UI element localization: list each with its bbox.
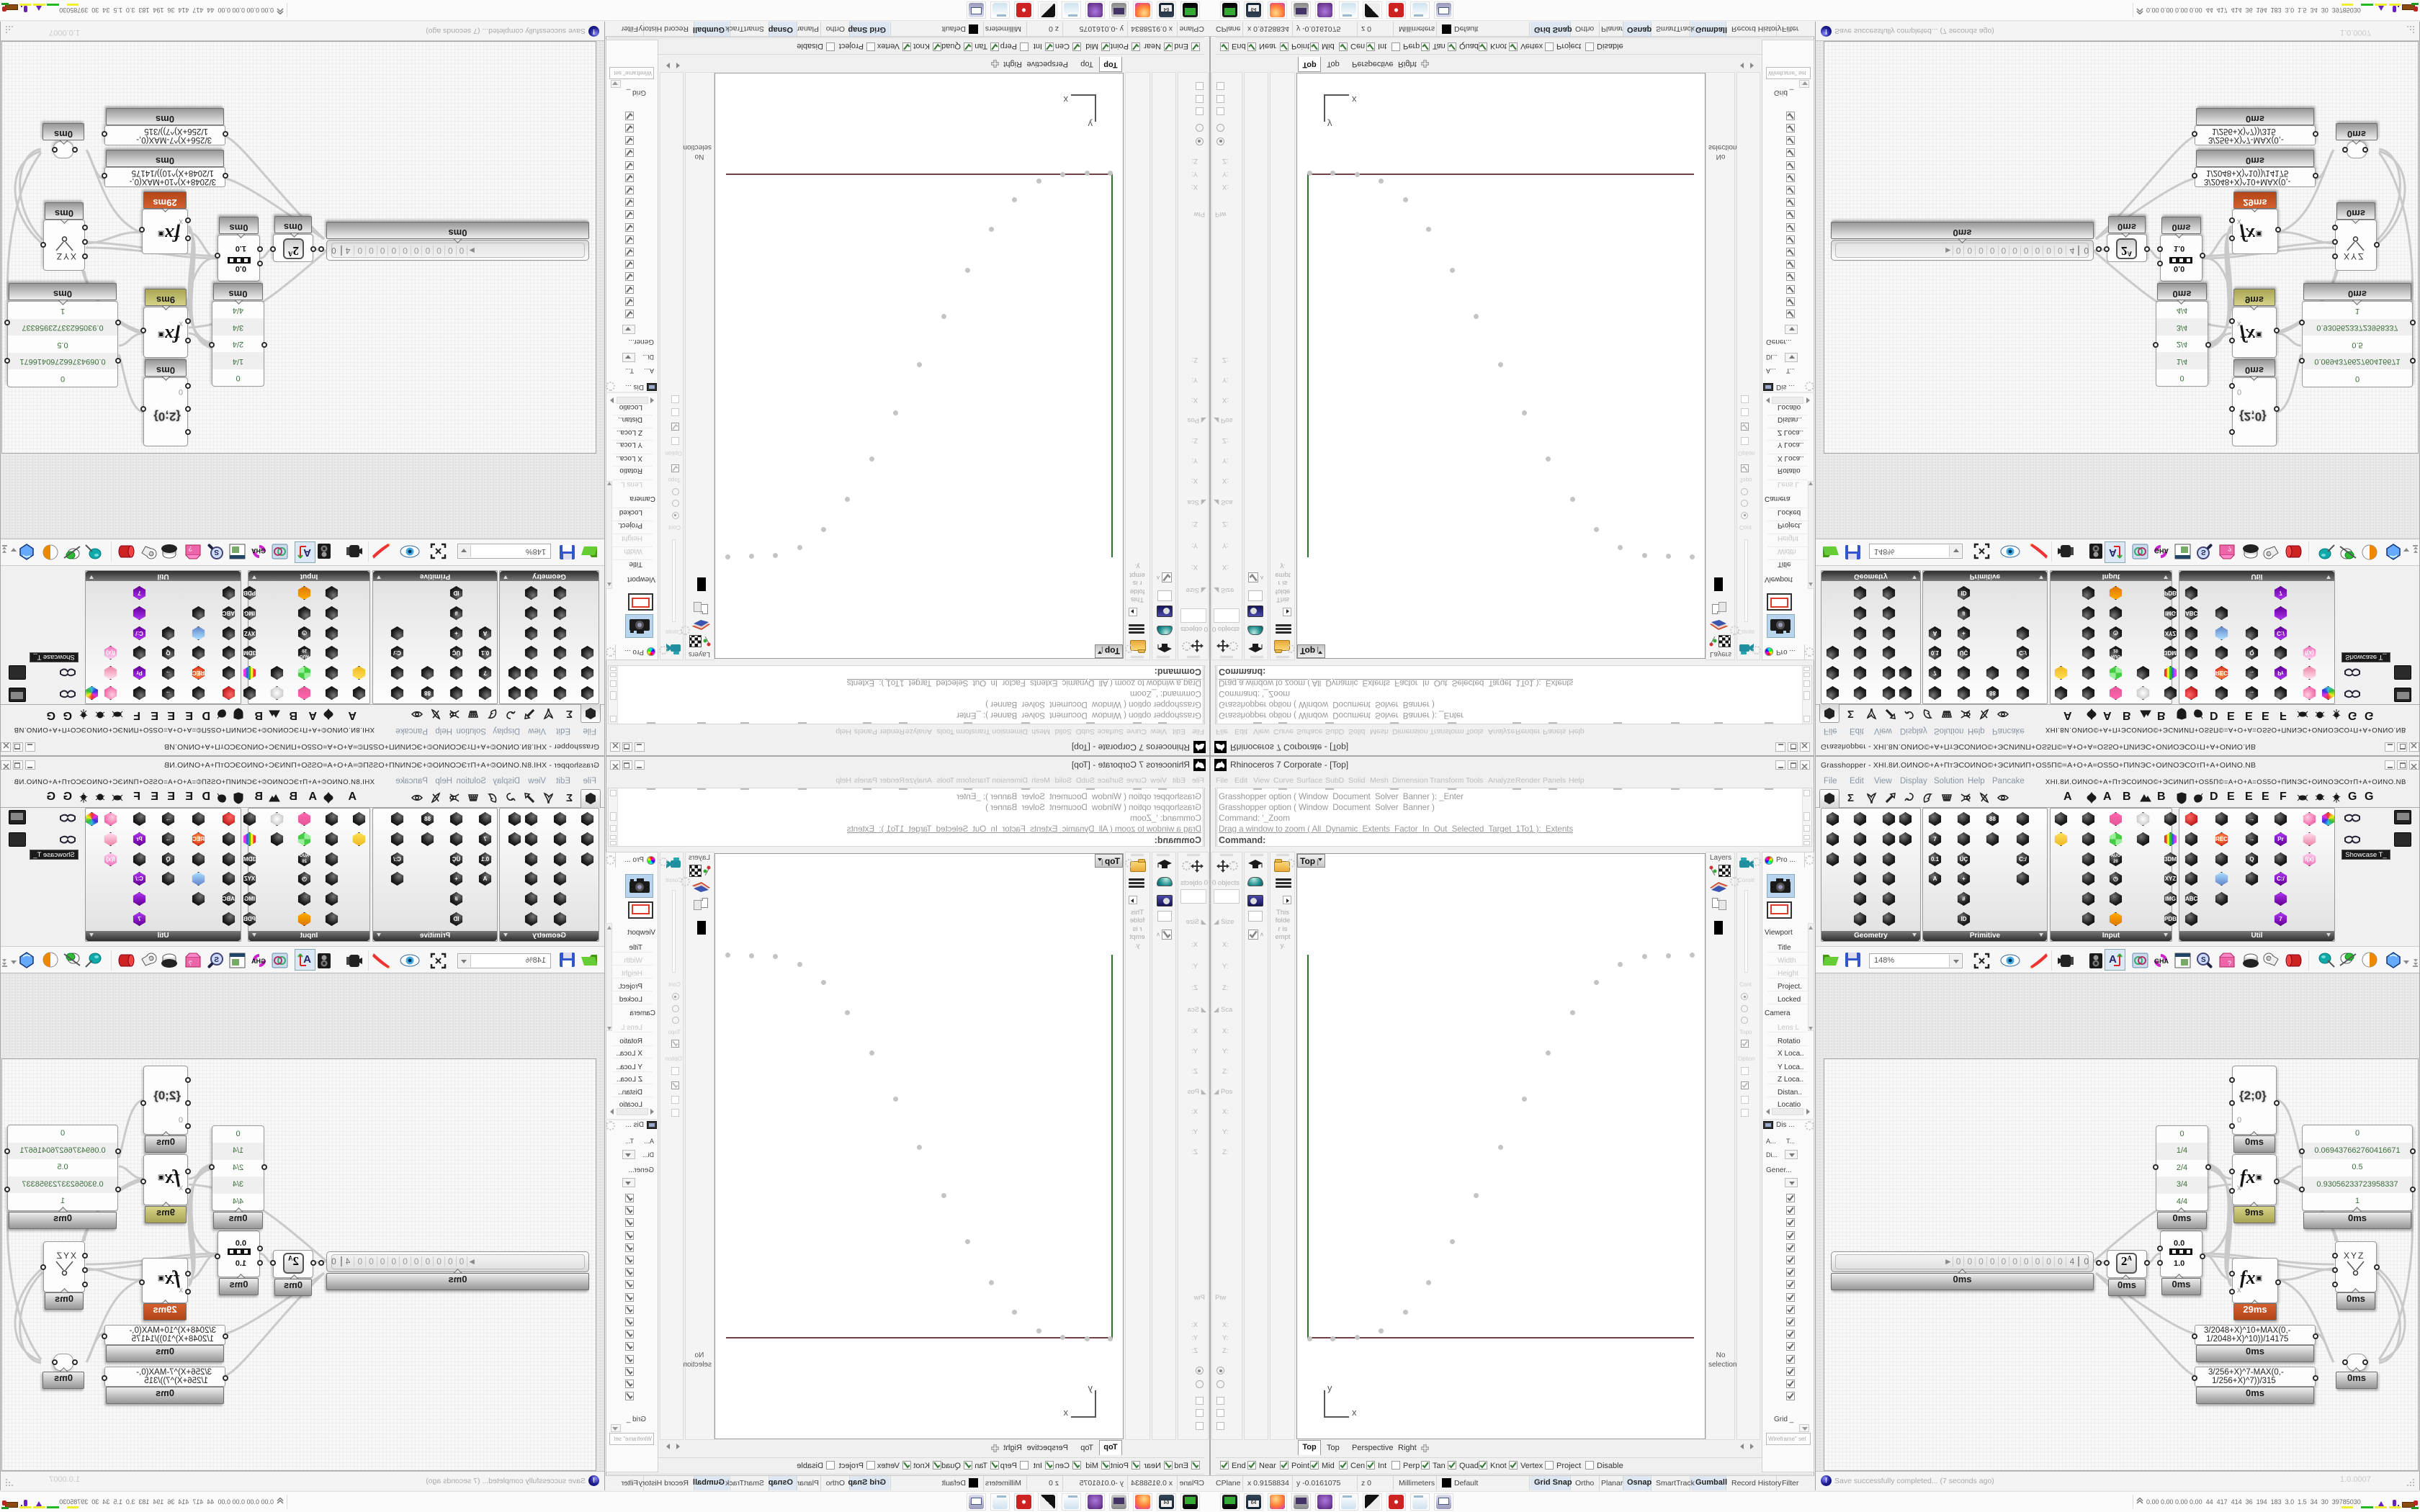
svg-text:?: ? (189, 960, 192, 967)
svg-text:GHA: GHA (251, 958, 266, 965)
svg-text:0.0: 0.0 (236, 264, 246, 273)
svg-text:?: ? (189, 545, 192, 552)
svg-text:XYZ: XYZ (55, 1251, 76, 1261)
svg-text:XYZ: XYZ (2344, 1251, 2365, 1261)
svg-text:0.0: 0.0 (2174, 1239, 2184, 1248)
svg-text:GHA: GHA (251, 547, 266, 554)
svg-text:GHA: GHA (2154, 547, 2169, 554)
svg-text:S: S (214, 548, 219, 556)
svg-text:A: A (2109, 546, 2117, 559)
svg-text:A: A (303, 546, 311, 559)
svg-text:A: A (303, 953, 311, 966)
svg-text:0.0: 0.0 (236, 1239, 246, 1248)
svg-text:S: S (2201, 956, 2206, 964)
svg-text:?: ? (2228, 960, 2231, 967)
svg-text:?: ? (2228, 545, 2231, 552)
svg-text:1.0: 1.0 (2174, 1259, 2184, 1268)
svg-text:1.0: 1.0 (236, 244, 246, 253)
svg-text:A: A (2109, 953, 2117, 966)
svg-text:XYZ: XYZ (2344, 251, 2365, 261)
svg-text:1.0: 1.0 (236, 1259, 246, 1268)
svg-text:0.0: 0.0 (2174, 264, 2184, 273)
svg-text:S: S (2201, 548, 2206, 556)
svg-text:S: S (214, 956, 219, 964)
svg-text:GHA: GHA (2154, 958, 2169, 965)
svg-text:1.0: 1.0 (2174, 244, 2184, 253)
svg-text:XYZ: XYZ (55, 251, 76, 261)
